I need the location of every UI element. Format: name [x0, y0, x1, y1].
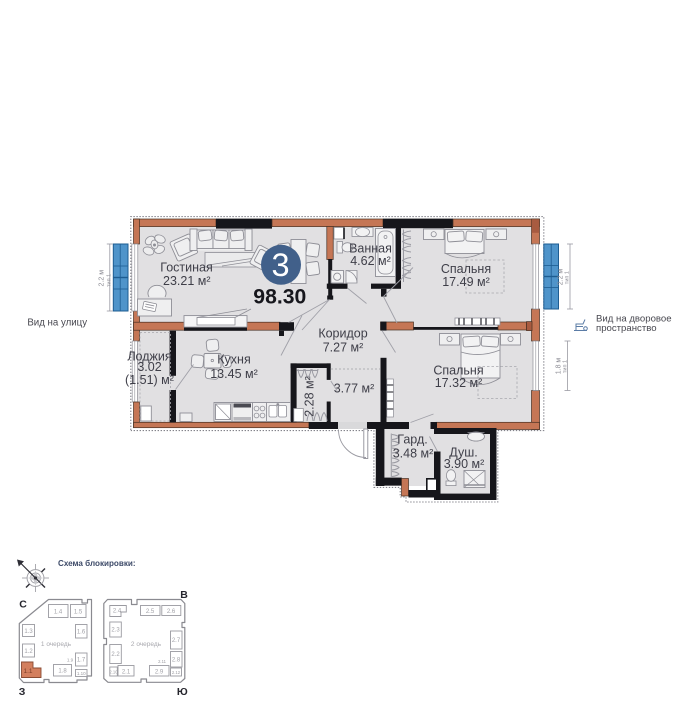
svg-text:Коридор: Коридор: [318, 327, 367, 341]
svg-text:4.62 м²: 4.62 м²: [350, 254, 391, 268]
svg-text:2.2 м: 2.2 м: [558, 269, 565, 286]
svg-text:2.28 м²: 2.28 м²: [303, 376, 317, 417]
svg-text:13.45 м²: 13.45 м²: [210, 367, 258, 381]
svg-text:23.21 м²: 23.21 м²: [163, 274, 211, 288]
svg-text:Кухня: Кухня: [217, 352, 250, 366]
svg-text:1.9: 1.9: [67, 658, 74, 663]
svg-text:1.1: 1.1: [23, 668, 32, 675]
svg-text:пространство: пространство: [596, 323, 657, 334]
svg-text:2 очередь: 2 очередь: [131, 641, 162, 648]
svg-text:2.4: 2.4: [113, 609, 122, 615]
svg-text:Ю: Ю: [177, 686, 188, 698]
svg-text:тип 1: тип 1: [563, 360, 569, 373]
svg-text:98.30: 98.30: [253, 285, 306, 308]
svg-text:1.8 м: 1.8 м: [556, 358, 563, 375]
svg-text:тип 1: тип 1: [565, 271, 571, 284]
svg-text:3: 3: [271, 247, 289, 283]
svg-text:1.4: 1.4: [54, 610, 63, 616]
svg-text:2.8: 2.8: [172, 658, 181, 664]
svg-text:2.7: 2.7: [172, 638, 181, 644]
svg-text:С: С: [19, 599, 27, 611]
svg-text:1.5: 1.5: [74, 610, 83, 616]
svg-text:тип 1: тип 1: [107, 274, 113, 287]
svg-text:2.3: 2.3: [111, 628, 120, 634]
svg-text:3.77 м²: 3.77 м²: [334, 382, 375, 396]
svg-text:2.5: 2.5: [146, 609, 155, 615]
svg-text:3.90 м²: 3.90 м²: [444, 457, 485, 471]
svg-text:17.49 м²: 17.49 м²: [442, 275, 490, 289]
svg-text:(1.51) м²: (1.51) м²: [125, 373, 174, 387]
svg-text:2.10: 2.10: [109, 670, 118, 675]
svg-text:1.7: 1.7: [77, 658, 86, 664]
svg-text:7.27 м²: 7.27 м²: [323, 341, 364, 355]
svg-text:Вид на улицу: Вид на улицу: [27, 317, 87, 328]
svg-text:3.02: 3.02: [137, 360, 161, 374]
svg-text:2.9: 2.9: [155, 670, 164, 676]
svg-text:2.2 м: 2.2 м: [99, 270, 106, 287]
svg-text:2.1: 2.1: [122, 670, 131, 676]
svg-text:17.32 м²: 17.32 м²: [435, 376, 483, 390]
svg-text:3.48 м²: 3.48 м²: [393, 447, 434, 461]
svg-text:З: З: [19, 686, 26, 698]
svg-text:1.3: 1.3: [24, 629, 33, 635]
svg-text:В: В: [180, 589, 188, 601]
svg-text:1.10: 1.10: [77, 671, 86, 676]
svg-text:Гостиная: Гостиная: [160, 261, 212, 275]
svg-text:1.6: 1.6: [77, 630, 86, 636]
svg-text:Схема блокировки:: Схема блокировки:: [58, 559, 136, 568]
svg-text:1.2: 1.2: [24, 649, 33, 655]
svg-text:2.6: 2.6: [167, 609, 176, 615]
svg-text:2.12: 2.12: [172, 670, 181, 675]
svg-text:2.2: 2.2: [111, 652, 120, 658]
svg-text:Гард.: Гард.: [397, 433, 427, 447]
svg-text:1 очередь: 1 очередь: [41, 641, 72, 648]
svg-text:1.8: 1.8: [58, 669, 67, 675]
svg-text:2.11: 2.11: [158, 659, 167, 664]
